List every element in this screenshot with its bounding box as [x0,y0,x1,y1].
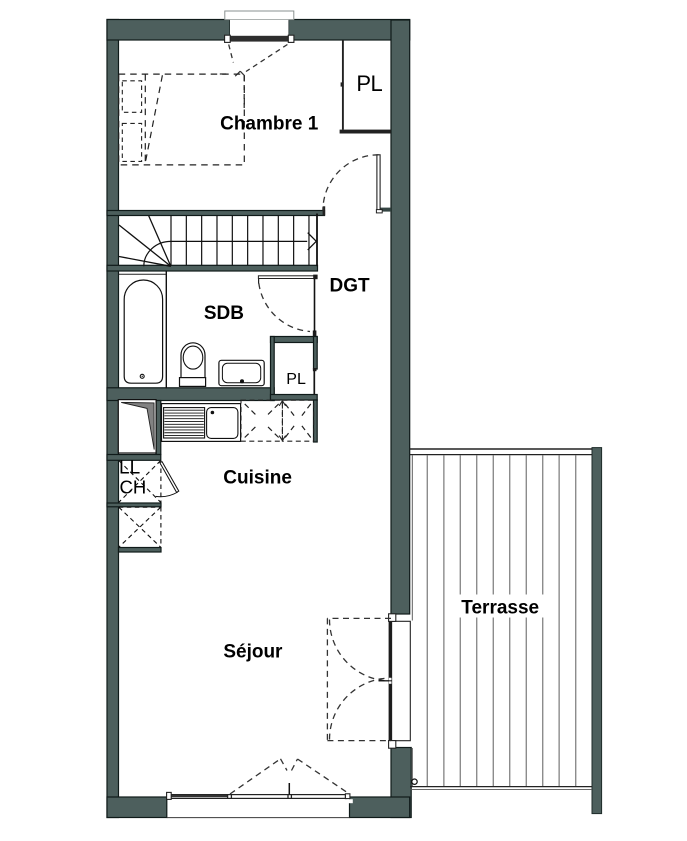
svg-text:SDB: SDB [204,303,244,324]
svg-text:PL: PL [356,71,382,96]
svg-text:Terrasse: Terrasse [461,598,539,619]
svg-text:Cuisine: Cuisine [223,468,292,489]
svg-text:Chambre 1: Chambre 1 [220,114,319,135]
svg-text:CH: CH [120,477,147,498]
svg-text:Séjour: Séjour [223,642,283,663]
svg-text:DGT: DGT [330,276,371,297]
svg-text:PL: PL [286,371,306,388]
